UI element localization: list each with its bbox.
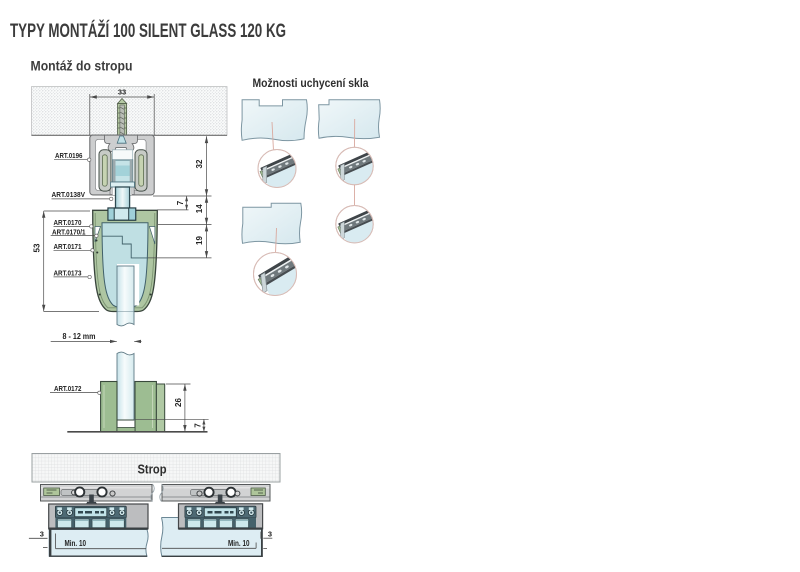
svg-text:ART.0196: ART.0196: [55, 151, 83, 160]
svg-text:TYPY MONTÁŽÍ 100 SILENT GLASS: TYPY MONTÁŽÍ 100 SILENT GLASS 120 KG: [10, 20, 286, 42]
svg-text:14: 14: [195, 204, 204, 213]
svg-text:26: 26: [174, 398, 183, 407]
svg-text:7: 7: [176, 200, 185, 205]
svg-text:ART.0173: ART.0173: [54, 268, 82, 277]
svg-text:Montáž do stropu: Montáž do stropu: [31, 58, 133, 74]
svg-text:ART.0138V: ART.0138V: [52, 190, 86, 199]
svg-text:7: 7: [193, 423, 202, 428]
svg-text:Možnosti uchycení skla: Možnosti uchycení skla: [253, 78, 370, 90]
svg-text:ART.0171: ART.0171: [54, 242, 82, 251]
svg-text:33: 33: [118, 88, 126, 97]
svg-text:3: 3: [268, 529, 272, 538]
svg-text:19: 19: [195, 236, 204, 245]
svg-text:53: 53: [33, 243, 42, 252]
svg-text:3: 3: [40, 529, 44, 538]
svg-text:Min. 10: Min. 10: [65, 539, 87, 548]
svg-text:ART.0170: ART.0170: [54, 218, 82, 227]
svg-text:8 - 12 mm: 8 - 12 mm: [63, 332, 96, 341]
svg-text:32: 32: [195, 159, 204, 168]
svg-text:Strop: Strop: [138, 463, 167, 477]
svg-text:Min. 10: Min. 10: [228, 539, 250, 548]
svg-text:ART.0170/1: ART.0170/1: [52, 227, 86, 236]
svg-text:ART.0172: ART.0172: [54, 384, 82, 393]
